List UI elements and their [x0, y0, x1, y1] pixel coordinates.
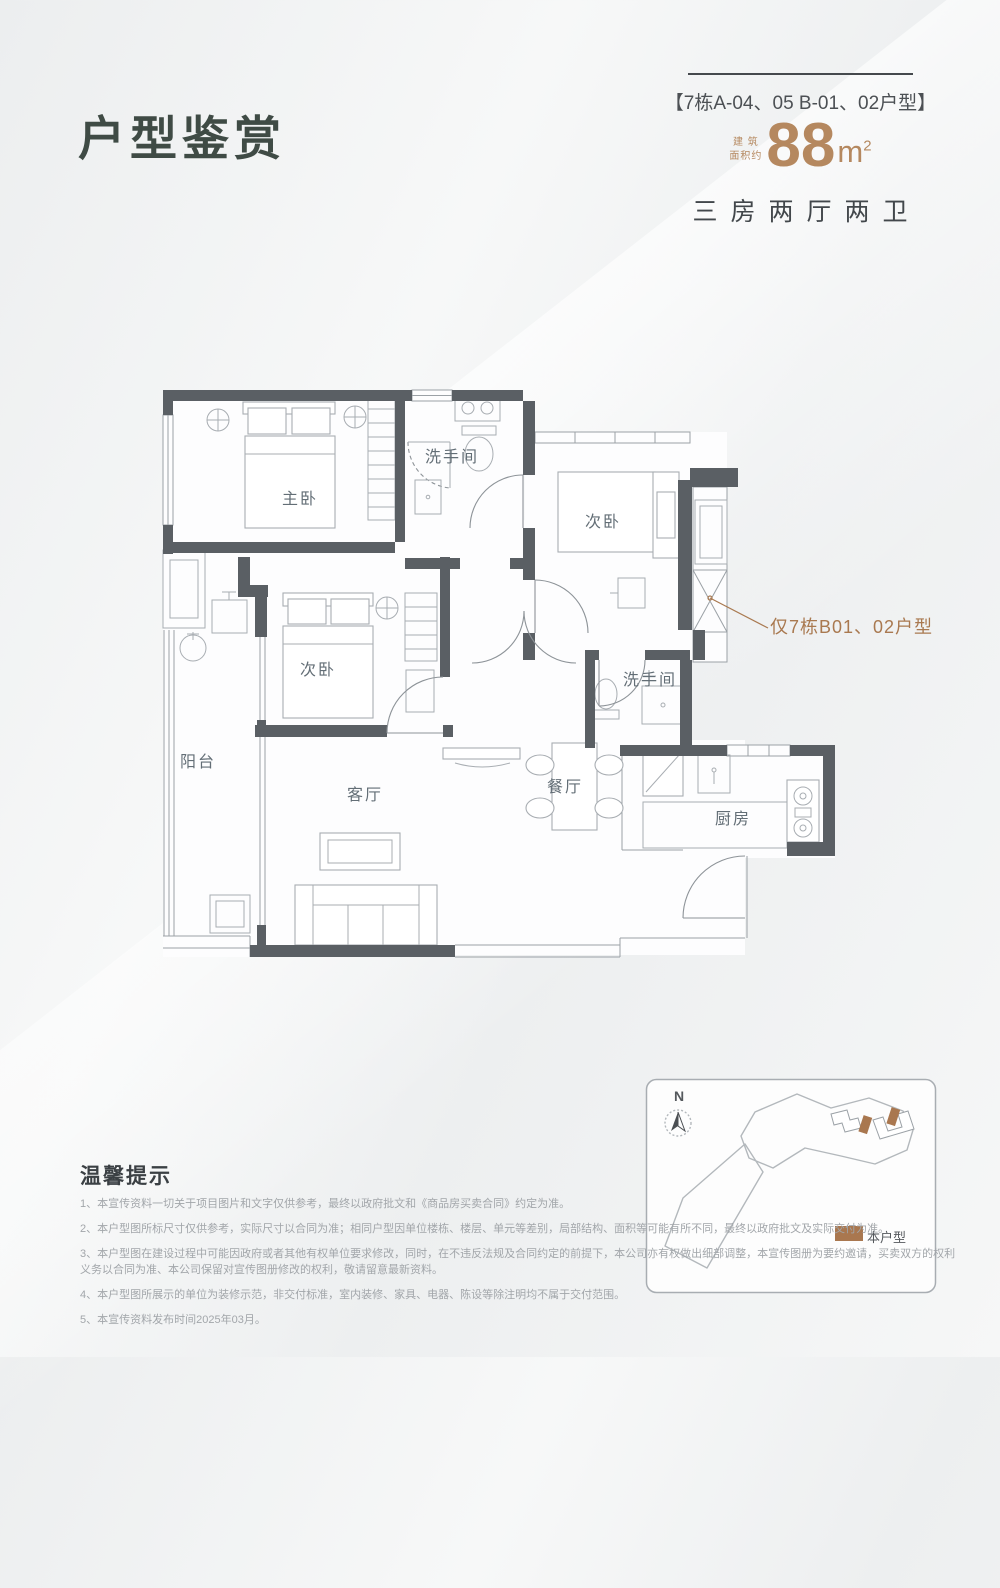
header-divider-line: [688, 73, 913, 75]
area-prefix: 建 筑 面积约: [729, 136, 762, 164]
area-prefix-line1: 建 筑: [729, 136, 762, 150]
room-label-bedroom2: 次卧: [585, 508, 621, 532]
area-unit: m2: [837, 134, 871, 170]
room-label-bathroom2: 洗手间: [623, 666, 677, 690]
room-label-bedroom3: 次卧: [300, 656, 336, 680]
room-label-living-room: 客厅: [347, 781, 383, 805]
area-row: 建 筑 面积约 88 m2: [688, 120, 913, 173]
page-title: 户型鉴赏: [78, 100, 286, 169]
room-label-balcony: 阳台: [180, 748, 216, 772]
room-label-dining-room: 餐厅: [547, 773, 583, 797]
notice-item: 5、本宣传资料发布时间2025年03月。: [80, 1313, 965, 1329]
notice-item: 3、本户型图在建设过程中可能因政府或者其他有权单位要求修改，同时，在不违反法规及…: [80, 1247, 965, 1279]
compass-north-label: N: [664, 1088, 694, 1104]
layout-description: 三房两厅两卫: [640, 192, 960, 228]
area-sup: 2: [863, 137, 871, 154]
room-label-master-bedroom: 主卧: [282, 485, 318, 509]
notice-title: 温馨提示: [80, 1160, 172, 1190]
room-label-kitchen: 厨房: [715, 805, 751, 829]
floor-plan-drawing: [150, 380, 870, 980]
area-value: 88: [766, 120, 835, 173]
room-label-bathroom1: 洗手间: [425, 443, 479, 467]
notice-item: 4、本户型图所展示的单位为装修示范，非交付标准，室内装修、家具、电器、陈设等除注…: [80, 1288, 965, 1304]
plan-annotation: 仅7栋B01、02户型: [770, 613, 933, 639]
area-prefix-line2: 面积约: [729, 150, 762, 164]
notice-item: 1、本宣传资料一切关于项目图片和文字仅供参考，最终以政府批文和《商品房买卖合同》…: [80, 1197, 965, 1213]
notice-list: 1、本宣传资料一切关于项目图片和文字仅供参考，最终以政府批文和《商品房买卖合同》…: [80, 1197, 965, 1338]
notice-item: 2、本户型图所标尺寸仅供参考，实际尺寸以合同为准；相同户型因单位楼栋、楼层、单元…: [80, 1222, 965, 1238]
